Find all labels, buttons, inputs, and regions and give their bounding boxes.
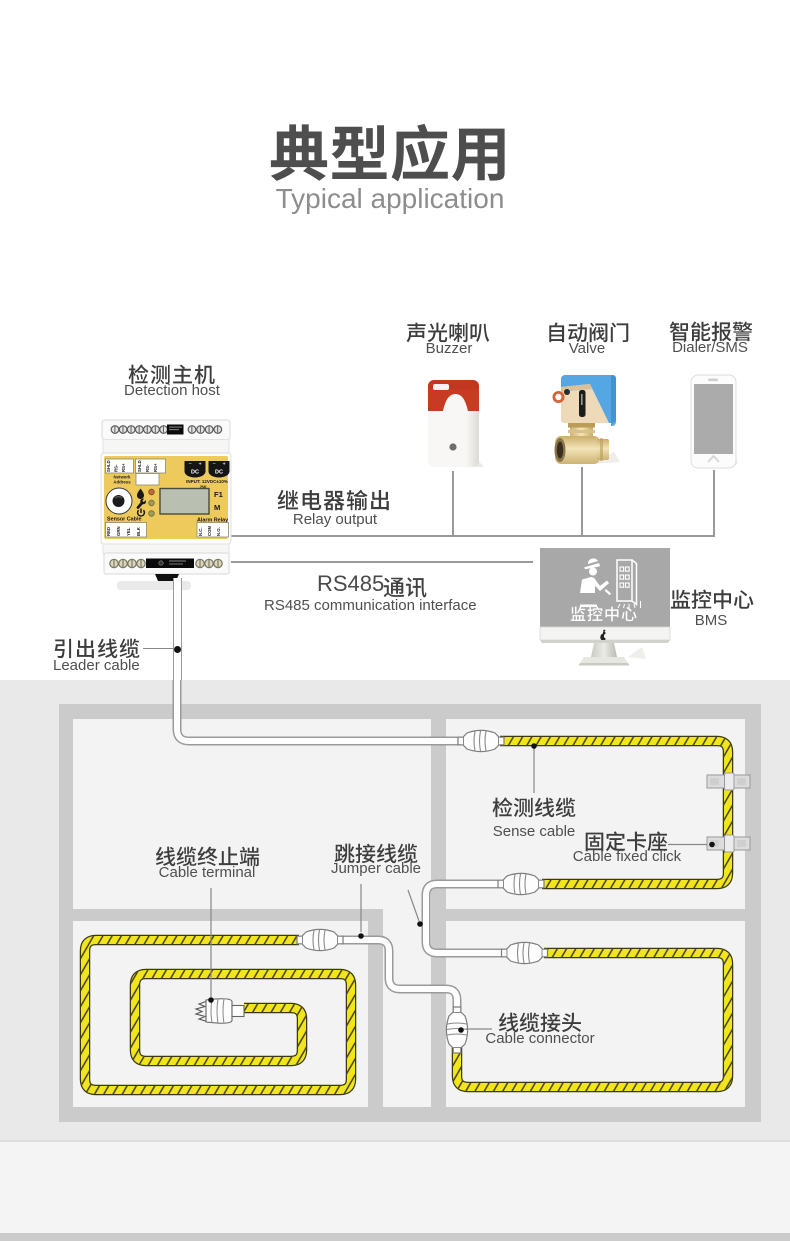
svg-text:M: M: [214, 503, 220, 512]
svg-text:DC: DC: [215, 470, 223, 476]
svg-text:GRN: GRN: [116, 526, 121, 536]
svg-text:SHLD: SHLD: [137, 460, 142, 472]
svg-text:INPUT: 12VDC±10%: INPUT: 12VDC±10%: [186, 479, 228, 484]
svg-text:−: −: [213, 462, 216, 468]
svg-text:Address: Address: [113, 480, 131, 485]
svg-text:RS+: RS+: [153, 463, 158, 472]
svg-text:N.C.: N.C.: [198, 527, 203, 536]
svg-text:F1: F1: [214, 490, 224, 499]
svg-text:RED: RED: [106, 527, 111, 536]
svg-text:+: +: [199, 462, 202, 468]
svg-text:N.O.: N.O.: [216, 527, 221, 536]
svg-text:−: −: [189, 462, 192, 468]
svg-text:DC: DC: [191, 470, 199, 476]
svg-text:RS-: RS-: [145, 464, 150, 472]
svg-text:SHLD: SHLD: [106, 460, 111, 472]
svg-text:BLK: BLK: [136, 526, 141, 536]
svg-text:RS-: RS-: [114, 464, 119, 472]
svg-text:YEL: YEL: [126, 527, 131, 536]
svg-text:Sensor Cable: Sensor Cable: [107, 517, 141, 523]
svg-text:RS+: RS+: [121, 463, 126, 472]
svg-text:+: +: [223, 462, 226, 468]
svg-text:COM: COM: [207, 526, 212, 536]
